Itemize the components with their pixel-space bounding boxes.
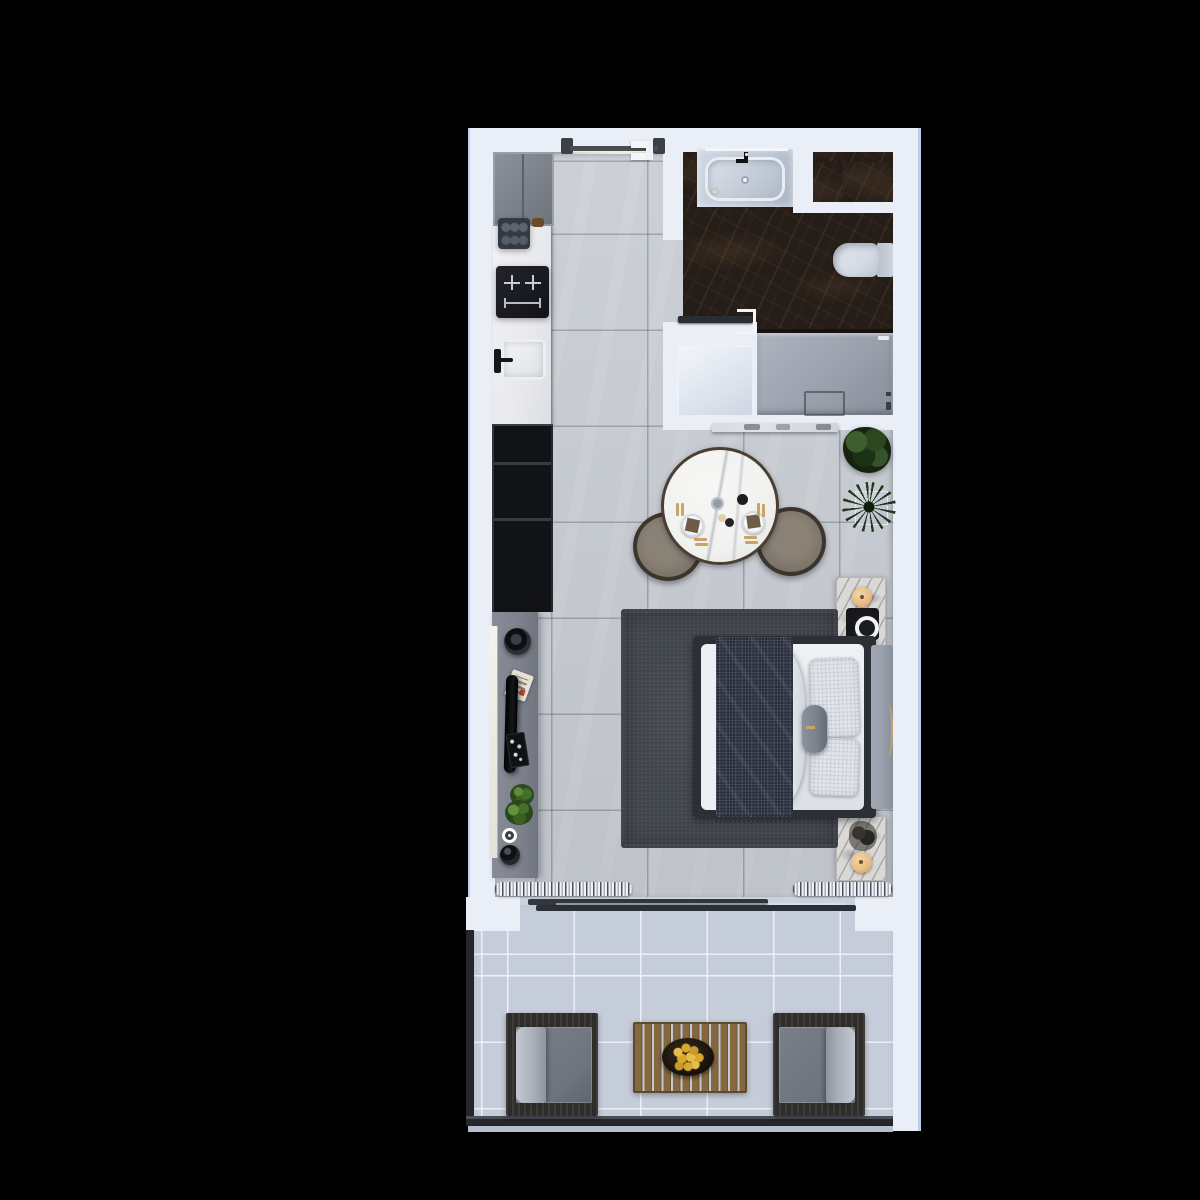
fruit-bowl [662,1038,714,1076]
kitchen-counter [493,226,551,425]
shower-drain [804,391,845,416]
burner-mark-right [525,275,541,290]
curtain-left [495,882,632,896]
vanity-shelf-line [705,148,788,151]
wall-right [893,128,921,1131]
kitchen-cabinet-divider [522,154,524,224]
shower-head-mark [878,336,889,340]
balcony-railing-left [466,930,474,1126]
cutlery-mark [757,503,760,516]
wall-hall-bathroom [663,152,683,240]
armchair-left [506,1013,598,1116]
bench-marble-fleck-3 [816,424,831,430]
table-item-dark [725,518,734,527]
book-accent [519,689,526,696]
floor-plan [0,0,1200,1200]
napkin-right [746,514,761,529]
cooktop-control-tick-l [504,298,506,308]
bolster-pillow [802,705,827,753]
balcony-railing-bottom [466,1116,893,1126]
napkin-left [685,518,700,533]
console-plant-2 [505,800,533,825]
bathroom-niche-panel [813,152,893,202]
nightstand-plant-sprig [849,821,877,851]
kitchen-small-item [532,218,544,227]
throw-fringe [716,815,793,822]
basin-soap [712,189,718,194]
table-bowl-black [737,494,748,505]
cutlery-mark [676,503,679,516]
toilet-tank [877,243,893,277]
wall-niche-bottom [813,202,893,213]
entry-door-leaf-edge [646,141,653,160]
fruit-cluster [668,1041,708,1073]
lamp-bottom-finial [859,860,863,864]
nightstand-bottom [836,816,886,881]
table-cup [711,497,724,510]
window-ledge [489,626,498,858]
cutlery-mark [744,536,757,539]
cutlery-mark [694,538,707,541]
cooktop [496,266,549,318]
armchair-right-back-cushion [826,1027,855,1103]
utility-nook-top [677,345,756,419]
headboard-gold-accent [883,703,893,758]
basin-faucet-dot [745,153,748,156]
toilet-bowl [833,243,879,277]
cooktop-control-line [504,302,541,304]
media-box-specks [508,735,526,764]
cutlery-mark [695,543,708,546]
coffee-machine [498,218,530,249]
cooktop-control-tick-r [539,298,541,308]
curtain-right [793,882,892,896]
bed-throw [716,637,793,817]
shower-marble-seam [757,329,893,333]
coffee-table [633,1022,747,1093]
shelf-divider-2 [494,518,551,521]
toilet [833,241,893,279]
cutlery-mark [745,541,758,544]
plate-left [681,514,704,537]
wall-utility-right [752,345,757,415]
basin-drain [741,176,749,184]
cutlery-mark [681,503,684,516]
wall-bottom-right-block [855,897,918,931]
balcony-ledge-outer [468,1126,893,1132]
sliding-door-track-2 [536,905,856,911]
console-speaker [504,628,531,655]
wall-niche-left [793,152,813,213]
sink-faucet-spout [499,358,513,362]
cutlery-mark [762,504,765,517]
burner-mark-left [504,275,520,290]
open-shelf-unit [492,424,553,612]
shelf-divider-1 [494,462,551,465]
lamp-top-finial [860,595,864,599]
basin-faucet-h [736,159,748,163]
shower-valve-2 [886,402,891,410]
plant-spiky [842,482,896,532]
dining-table [661,447,779,565]
wall-top [468,128,918,152]
bench-marble-fleck-2 [776,424,790,430]
bolster-gold-band [806,726,815,729]
marble-bench [712,423,838,432]
wall-bottom-left-block [466,897,520,931]
shower-valve-1 [886,392,891,396]
armchair-left-back-cushion [516,1027,546,1103]
sliding-door-glass [556,903,846,905]
wall-utility-left [663,345,677,415]
bench-marble-fleck-1 [744,424,760,430]
console-cup [502,828,517,843]
bathroom-door-handle [737,309,756,334]
armchair-right [773,1013,865,1116]
console-vase [500,845,520,865]
